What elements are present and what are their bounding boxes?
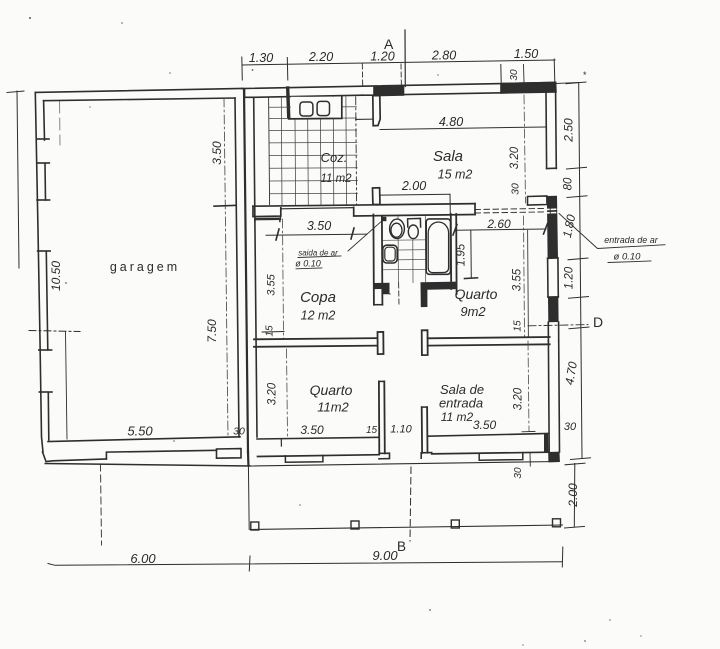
- svg-text:10.50: 10.50: [49, 261, 63, 291]
- svg-text:Copa: Copa: [300, 289, 336, 306]
- svg-text:2.20: 2.20: [308, 50, 333, 64]
- svg-text:15 m2: 15 m2: [438, 168, 473, 182]
- svg-text:2.80: 2.80: [431, 49, 456, 63]
- svg-text:3.50: 3.50: [307, 219, 331, 233]
- svg-text:15: 15: [366, 425, 378, 436]
- svg-text:11m2: 11m2: [317, 400, 349, 415]
- svg-text:3.20: 3.20: [267, 382, 279, 405]
- svg-text:3.55: 3.55: [266, 273, 278, 295]
- svg-text:Quarto: Quarto: [455, 286, 498, 302]
- svg-text:entrada de ar: entrada de ar: [604, 235, 659, 245]
- svg-text:2.60: 2.60: [486, 217, 511, 231]
- svg-text:80: 80: [563, 177, 575, 190]
- svg-text:6.00: 6.00: [130, 551, 156, 566]
- svg-text:1.95: 1.95: [456, 243, 468, 266]
- svg-text:2.00: 2.00: [566, 483, 580, 508]
- svg-text:9m2: 9m2: [460, 304, 486, 319]
- svg-text:11 m2: 11 m2: [441, 410, 474, 424]
- svg-text:15: 15: [513, 320, 524, 332]
- svg-text:30: 30: [564, 421, 577, 433]
- svg-text:entrada: entrada: [439, 396, 483, 411]
- svg-text:7.50: 7.50: [205, 319, 219, 343]
- svg-text:9.00: 9.00: [372, 548, 398, 563]
- svg-text:1.30: 1.30: [249, 51, 273, 65]
- svg-text:2.00: 2.00: [401, 179, 426, 193]
- svg-text:Quarto: Quarto: [310, 382, 353, 398]
- svg-text:1.20: 1.20: [564, 266, 576, 289]
- svg-text:3.50: 3.50: [473, 418, 497, 432]
- svg-text:3.20: 3.20: [513, 387, 525, 410]
- svg-text:D: D: [593, 314, 603, 330]
- svg-text:Coz.: Coz.: [321, 150, 348, 165]
- svg-text:Sala: Sala: [433, 148, 463, 165]
- svg-text:3.50: 3.50: [300, 423, 324, 437]
- svg-text:30: 30: [510, 183, 522, 195]
- svg-text:garagem: garagem: [110, 260, 180, 274]
- svg-text:30: 30: [509, 69, 520, 81]
- svg-text:ø 0.10: ø 0.10: [295, 259, 321, 269]
- svg-text:4.80: 4.80: [439, 115, 463, 129]
- svg-text:B: B: [397, 539, 406, 554]
- svg-text:30: 30: [233, 426, 245, 438]
- svg-text:3.20: 3.20: [509, 146, 521, 169]
- svg-text:3.55: 3.55: [512, 268, 524, 291]
- svg-text:*: *: [583, 70, 587, 80]
- svg-text:11 m2: 11 m2: [320, 173, 352, 185]
- svg-text:12 m2: 12 m2: [301, 309, 336, 323]
- svg-text:2.50: 2.50: [562, 118, 576, 143]
- svg-text:A: A: [384, 36, 394, 52]
- svg-text:3.50: 3.50: [210, 141, 224, 165]
- svg-text:1.50: 1.50: [514, 47, 538, 61]
- svg-text:30: 30: [513, 467, 524, 479]
- svg-text:1.10: 1.10: [390, 424, 412, 436]
- svg-text:15: 15: [265, 325, 276, 337]
- svg-text:5.50: 5.50: [127, 424, 153, 439]
- svg-text:ø 0.10: ø 0.10: [614, 252, 642, 263]
